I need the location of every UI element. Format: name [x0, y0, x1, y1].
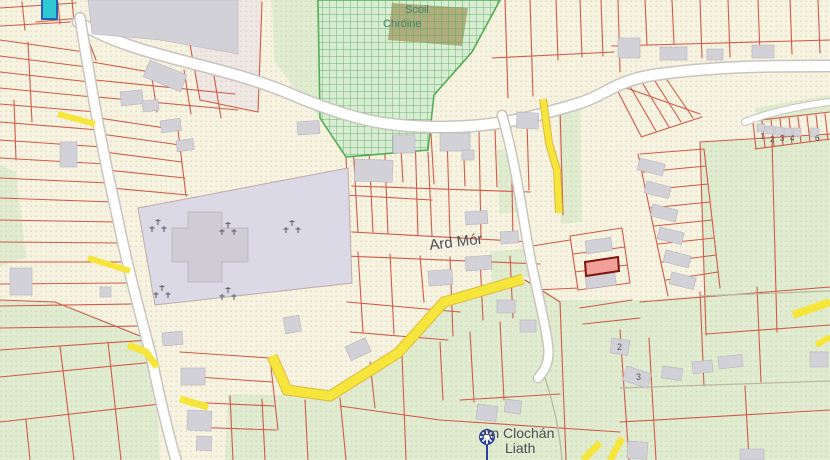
plot-number: 3 — [780, 134, 785, 143]
school-label-line2: Chróine — [383, 18, 422, 30]
cadastral-map[interactable]: Scoil Chróine Ard Mór An Clochán Liath 1… — [0, 0, 830, 460]
town-label-line2: Liath — [505, 440, 535, 456]
building-number: 2 — [617, 342, 622, 352]
selection-marker[interactable] — [42, 0, 57, 19]
map-canvas[interactable]: Scoil Chróine Ard Mór An Clochán Liath 1… — [0, 0, 830, 460]
plot-number: 6 — [815, 134, 820, 143]
plot-number: 2 — [770, 135, 775, 144]
school-label-line1: Scoil — [405, 4, 429, 16]
town-label-line1: An Clochán — [482, 425, 554, 441]
plot-number: 4 — [790, 134, 795, 143]
building-number: 3 — [636, 372, 641, 382]
plot-number: 1 — [760, 132, 765, 141]
